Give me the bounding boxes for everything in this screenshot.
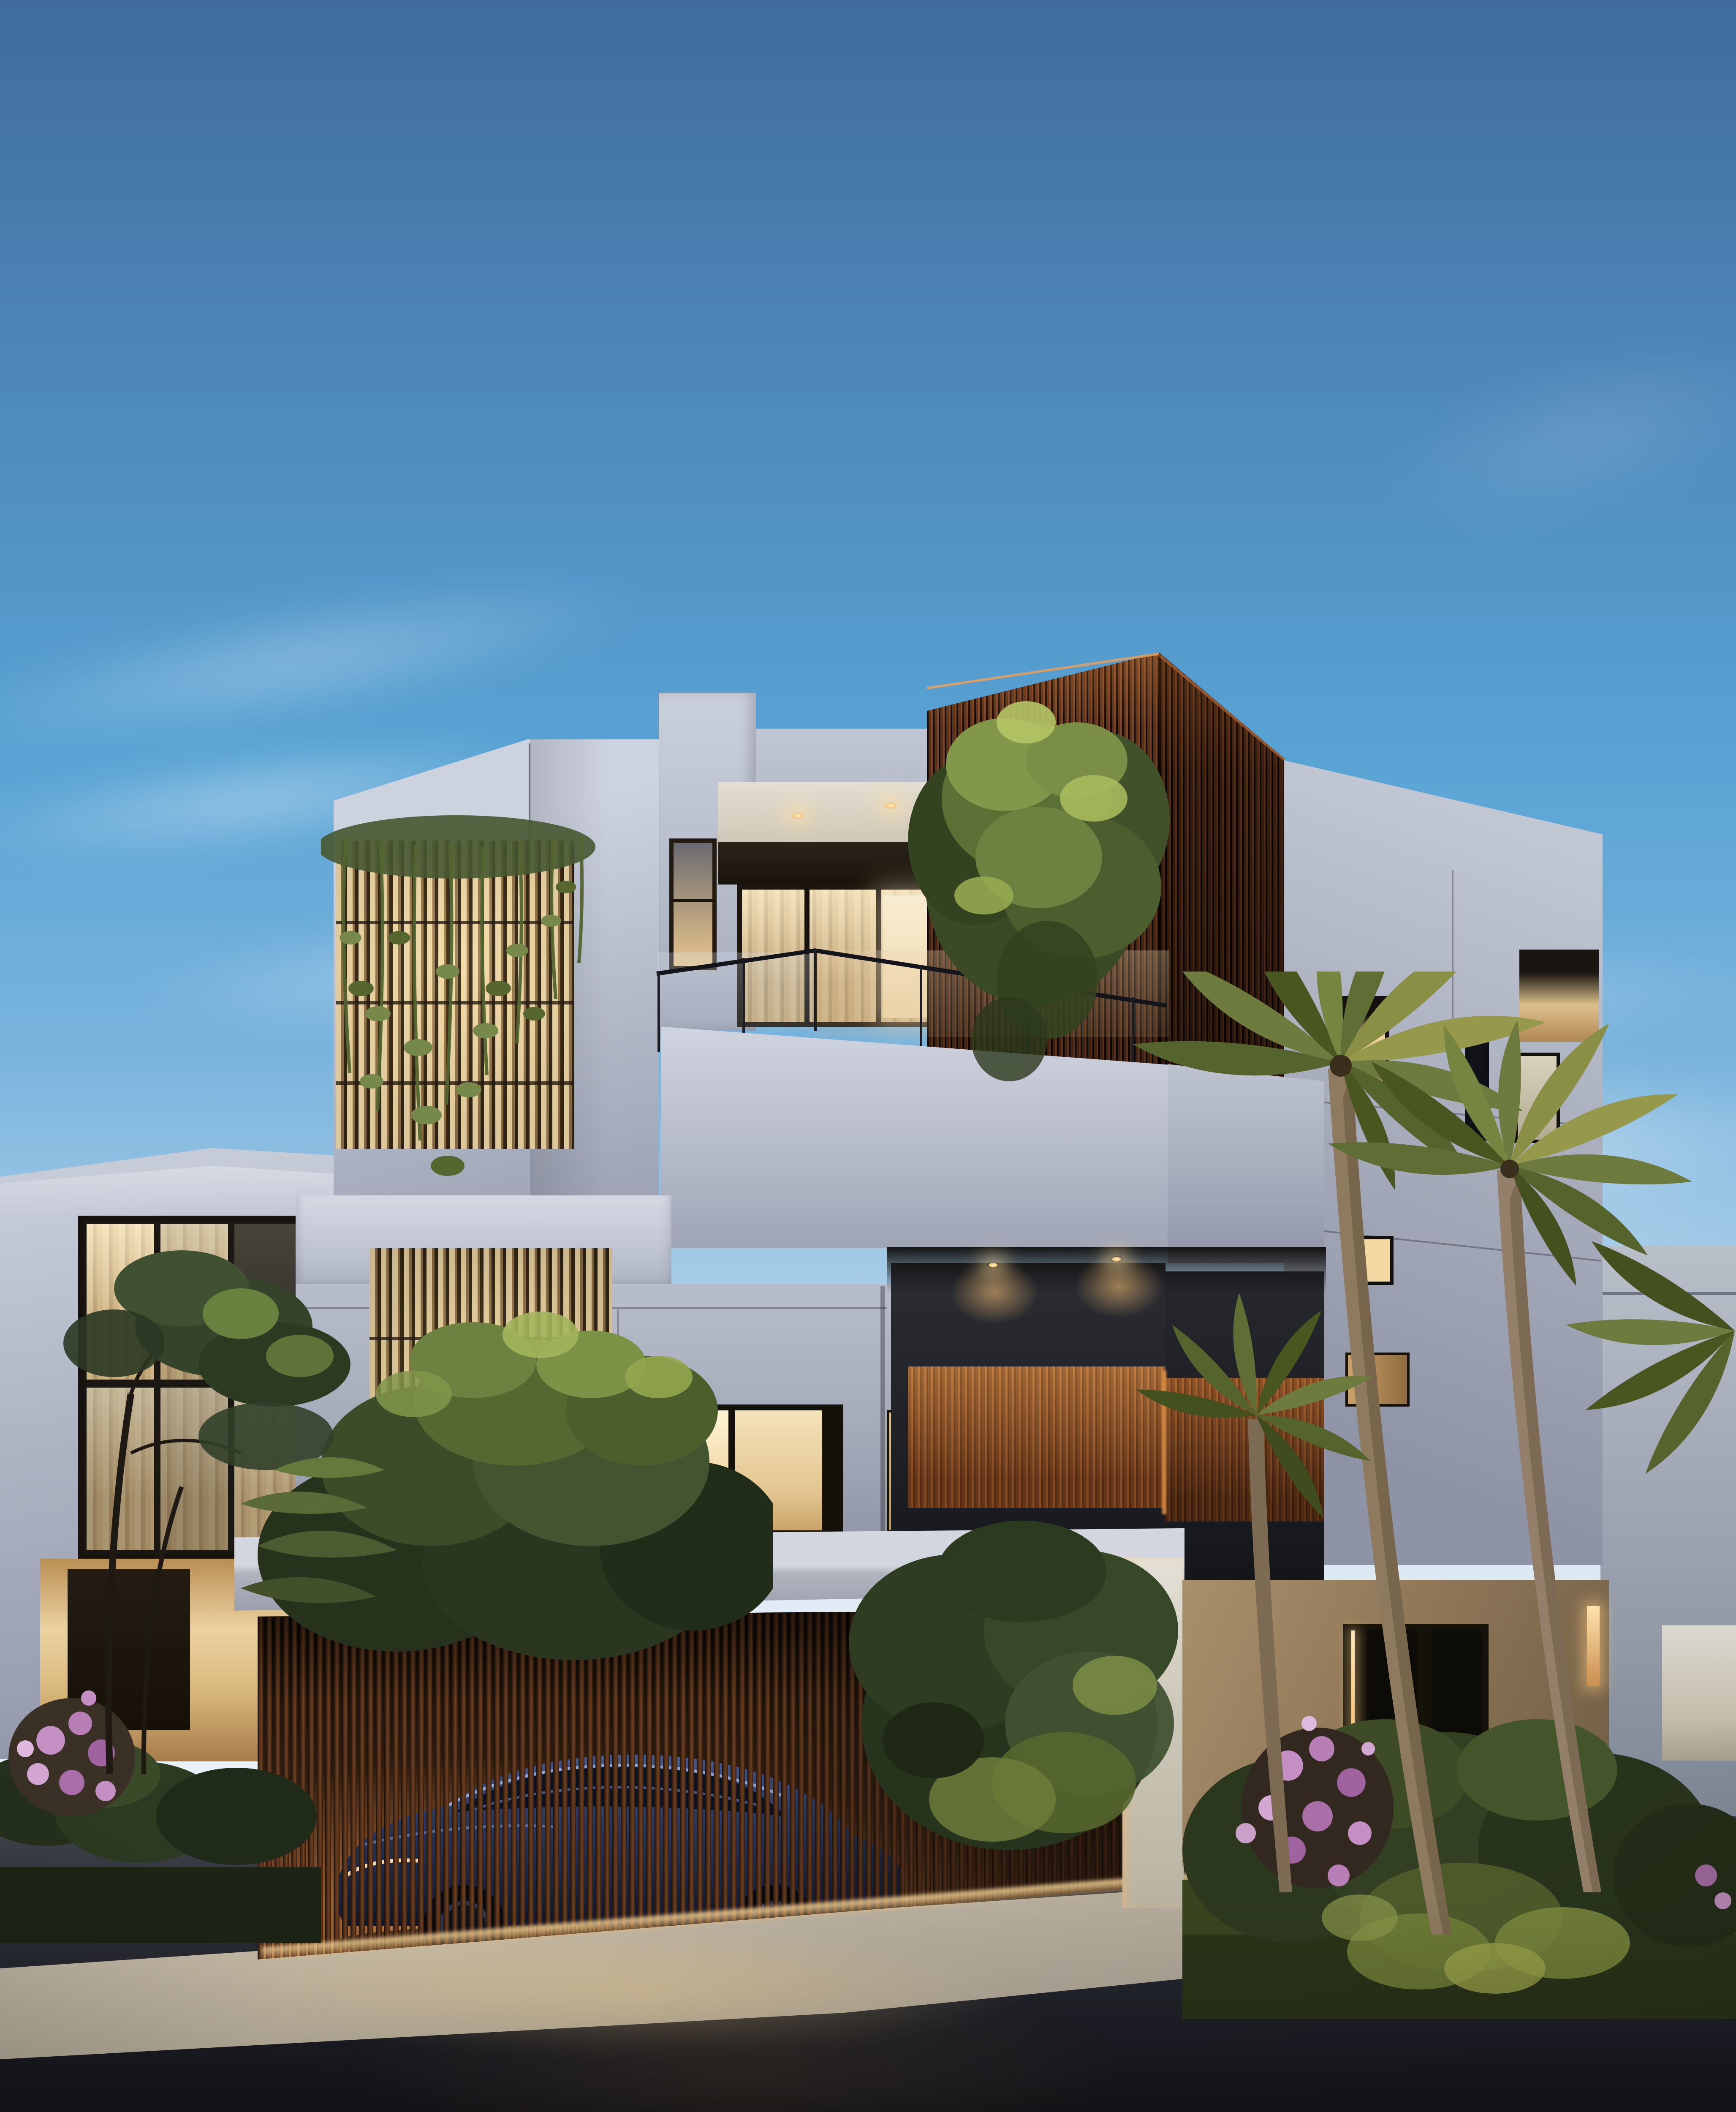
neighbour-window-pane bbox=[87, 1388, 154, 1550]
led-strip-light bbox=[1351, 1630, 1355, 1833]
slat-rail bbox=[369, 1426, 612, 1429]
tall-window bbox=[669, 838, 717, 970]
railing-post bbox=[742, 958, 745, 1038]
entry-door-panel bbox=[1432, 1630, 1482, 1837]
bollard-light bbox=[1587, 1606, 1600, 1686]
lit-window-pane bbox=[735, 1410, 822, 1530]
downlight-glow bbox=[950, 1261, 1039, 1324]
railing-post bbox=[657, 972, 660, 1052]
timber-accent-band-side bbox=[1165, 1378, 1324, 1521]
timber-band-corner-glint bbox=[1162, 1371, 1166, 1514]
balcony-downlight bbox=[791, 812, 805, 819]
neighbour-window-pane bbox=[160, 1224, 228, 1380]
corner-shadow bbox=[880, 1286, 885, 1561]
neighbour-ground-window bbox=[68, 1569, 190, 1730]
background-villa-cornice bbox=[1600, 1292, 1736, 1295]
slat-rail bbox=[336, 1081, 574, 1085]
right-facade-window-small bbox=[1350, 1236, 1394, 1285]
balcony-header bbox=[718, 842, 954, 885]
balcony-downlight bbox=[883, 802, 898, 809]
villa-right-facade bbox=[1284, 760, 1603, 1565]
slat-rail bbox=[336, 1001, 574, 1004]
neighbour-window-pane bbox=[87, 1224, 154, 1380]
slat-rail bbox=[369, 1502, 612, 1505]
background-wall-right bbox=[1662, 1625, 1736, 1761]
glass-railing-panel bbox=[815, 950, 1169, 1037]
balcony-ceiling bbox=[718, 782, 954, 842]
lit-window-pane bbox=[641, 1410, 728, 1530]
right-facade-window-strip bbox=[1345, 1353, 1410, 1407]
entry-door-panel bbox=[1366, 1630, 1417, 1837]
panel-seam bbox=[617, 1309, 619, 1559]
downlight-glow bbox=[1075, 1255, 1163, 1318]
slat-rail bbox=[336, 921, 574, 924]
panel-seam bbox=[1452, 870, 1453, 1100]
right-facade-window-narrow bbox=[1465, 1035, 1489, 1141]
soffit-downlight bbox=[1111, 1256, 1122, 1262]
right-facade-window bbox=[1334, 996, 1389, 1086]
soffit-downlight bbox=[987, 1262, 999, 1268]
tall-window-mullion bbox=[671, 899, 715, 902]
timber-accent-band-front bbox=[908, 1366, 1165, 1508]
right-facade-window-pale bbox=[1514, 1053, 1560, 1143]
right-recessed-balcony bbox=[1519, 950, 1599, 1042]
architectural-render-scene bbox=[0, 0, 1736, 2112]
glass-railing-panel bbox=[657, 953, 816, 1031]
mid-slat-overlay bbox=[369, 1248, 612, 1561]
railing-post bbox=[1025, 981, 1028, 1063]
slat-rail bbox=[369, 1337, 612, 1340]
railing-post bbox=[814, 949, 817, 1031]
entry-pillar bbox=[1122, 1558, 1184, 1908]
neighbour-window-pane bbox=[160, 1388, 228, 1550]
railing-post bbox=[920, 965, 922, 1047]
roof-slat-screen bbox=[336, 841, 574, 1149]
